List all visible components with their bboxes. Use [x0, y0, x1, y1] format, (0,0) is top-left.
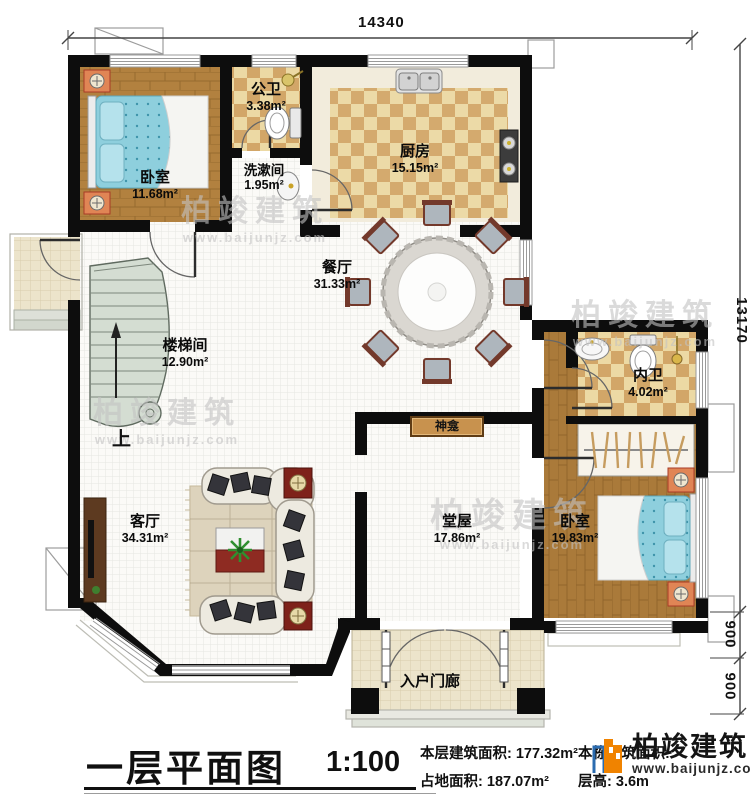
title-underline-thick	[84, 787, 416, 790]
dimension-step-depth: 900	[722, 672, 739, 700]
dining-table-icon	[383, 238, 491, 346]
room-label-kitchen: 厨房 15.15m²	[355, 144, 475, 175]
coffee-table-icon	[216, 528, 264, 572]
dimension-top-width: 14340	[358, 14, 405, 31]
inner-bath-sink-icon	[575, 338, 609, 360]
stat-land-area: 占地面积: 187.07m²	[420, 770, 549, 791]
room-label-dining: 餐厅 31.33m²	[294, 260, 380, 291]
room-label-washroom: 洗漱间 1.95m²	[224, 163, 304, 192]
plan-title: 一层平面图	[86, 738, 286, 792]
dimension-porch-depth: 900	[722, 620, 739, 648]
stat-floor-area: 本层建筑面积: 177.32m²	[420, 742, 578, 763]
dimension-right-height: 13170	[733, 297, 750, 344]
stove-icon	[500, 130, 518, 182]
room-label-inner-bath: 内卫 4.02m²	[606, 368, 690, 399]
title-underline-thin	[84, 793, 436, 794]
floor-plan-page: 卧室 11.68m² 公卫 3.38m² 洗漱间 1.95m² 厨房 15.15…	[0, 0, 750, 805]
room-label-public-bath: 公卫 3.38m²	[234, 82, 298, 113]
room-label-bedroom-2: 卧室 19.83m²	[527, 514, 623, 545]
brand-logo-icon	[590, 733, 628, 781]
brand-logo: 柏竣建筑 www.baijunjz.com	[590, 733, 750, 781]
shrine-box: 神龛	[410, 416, 484, 437]
stair-up-label: 上	[112, 424, 131, 451]
room-label-living: 客厅 34.31m²	[95, 514, 195, 545]
room-label-entry-porch: 入户门廊	[370, 674, 490, 691]
room-label-stairwell: 楼梯间 12.90m²	[130, 338, 240, 369]
kitchen-sink-icon	[396, 69, 442, 93]
room-label-bedroom-1: 卧室 11.68m²	[95, 170, 215, 201]
plan-scale: 1:100	[326, 746, 400, 779]
room-label-hall: 堂屋 17.86m²	[407, 514, 507, 545]
